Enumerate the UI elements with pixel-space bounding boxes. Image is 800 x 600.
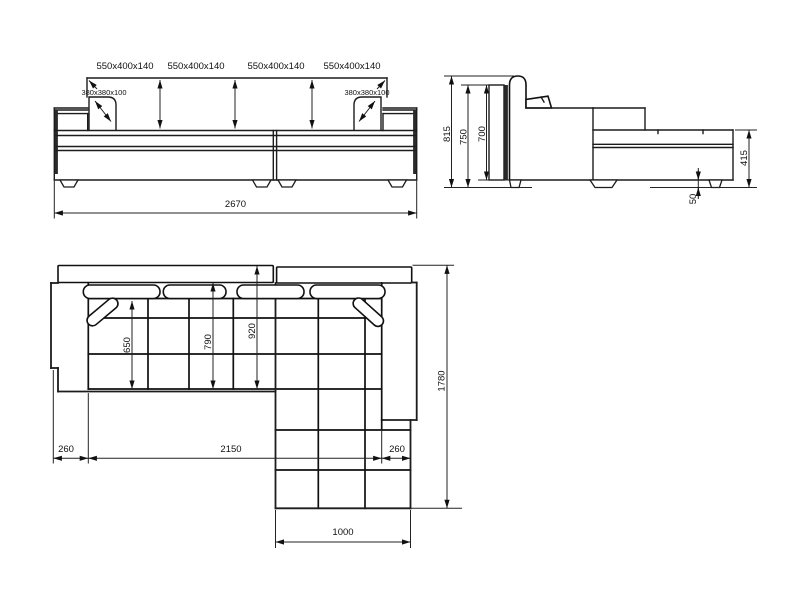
front-backrest-cushions xyxy=(87,78,387,129)
dimension-label-700: 700 xyxy=(477,126,488,142)
dimension-label-650: 650 xyxy=(122,337,133,353)
side-chaise xyxy=(593,130,733,180)
dimension-label-1780: 1780 xyxy=(437,370,448,391)
dimension-label-260-right: 260 xyxy=(389,444,405,455)
plan-cushion-3 xyxy=(237,285,304,299)
pillow-right-diagonal-arrow xyxy=(359,101,375,122)
plan-cushion-1 xyxy=(83,285,160,299)
plan-chaise-width-dimension: 1000 xyxy=(276,510,411,548)
dimension-label-1000: 1000 xyxy=(332,527,353,538)
plan-view: 650 790 920 1780 260 2150 260 xyxy=(51,265,462,548)
plan-cushion-4 xyxy=(310,285,385,299)
dimension-label-920: 920 xyxy=(247,323,258,339)
side-backrest-cushion xyxy=(510,76,527,180)
armrest-dark-edge xyxy=(55,110,58,174)
plan-width-dimensions: 260 2150 260 xyxy=(53,370,410,464)
front-left-armrest xyxy=(54,108,87,180)
side-back-panel xyxy=(489,85,504,180)
back-rail-left xyxy=(58,266,273,283)
cushion-size-label-1: 550x400x140 xyxy=(96,61,153,72)
pillow-size-label-left: 380x380x100 xyxy=(81,88,126,97)
dimension-label-790: 790 xyxy=(203,334,214,350)
side-wedge-cushion xyxy=(526,96,552,108)
armrest-dark-edge xyxy=(413,110,416,174)
sofa-dimension-drawing: 550x400x140 550x400x140 550x400x140 550x… xyxy=(0,0,800,600)
dimension-label-750: 750 xyxy=(459,129,470,145)
dimension-label-50: 50 xyxy=(688,194,699,205)
dimension-label-260-left: 260 xyxy=(58,444,74,455)
plan-cushion-2 xyxy=(163,285,226,299)
technical-drawing-canvas: 550x400x140 550x400x140 550x400x140 550x… xyxy=(0,0,800,600)
dimension-label-2670: 2670 xyxy=(225,199,246,210)
dimension-label-815: 815 xyxy=(442,126,453,142)
plan-bolster-left xyxy=(85,296,120,328)
pillow-left-diagonal-arrow xyxy=(95,101,111,122)
cushion-size-label-2: 550x400x140 xyxy=(167,61,224,72)
pillow-size-label-right: 380x380x100 xyxy=(344,88,389,97)
side-back-dark-strip xyxy=(504,85,508,180)
front-foot-4 xyxy=(388,180,407,187)
front-foot-3 xyxy=(278,180,296,187)
dimension-label-415: 415 xyxy=(739,150,750,166)
cushion-size-label-4: 550x400x140 xyxy=(323,61,380,72)
front-view: 550x400x140 550x400x140 550x400x140 550x… xyxy=(54,61,416,219)
side-foot-middle xyxy=(590,180,617,188)
plan-back-cushions xyxy=(83,285,385,329)
front-foot-1 xyxy=(60,180,78,187)
front-right-armrest xyxy=(383,108,417,180)
plan-total-depth-dimension: 1780 xyxy=(412,265,463,508)
side-foot-back xyxy=(510,180,522,188)
pillow-left-outline xyxy=(89,97,116,130)
front-foot-2 xyxy=(253,180,272,187)
front-base xyxy=(54,131,416,188)
pillow-right-outline xyxy=(354,97,381,130)
dimension-label-2150: 2150 xyxy=(220,444,241,455)
plan-bolster-right xyxy=(351,296,386,329)
cushion-size-label-3: 550x400x140 xyxy=(247,61,304,72)
front-width-dimension: 2670 xyxy=(54,181,416,219)
side-foot-front xyxy=(709,180,722,188)
back-rail-right xyxy=(277,267,412,283)
side-view: 815 750 700 xyxy=(442,76,757,204)
